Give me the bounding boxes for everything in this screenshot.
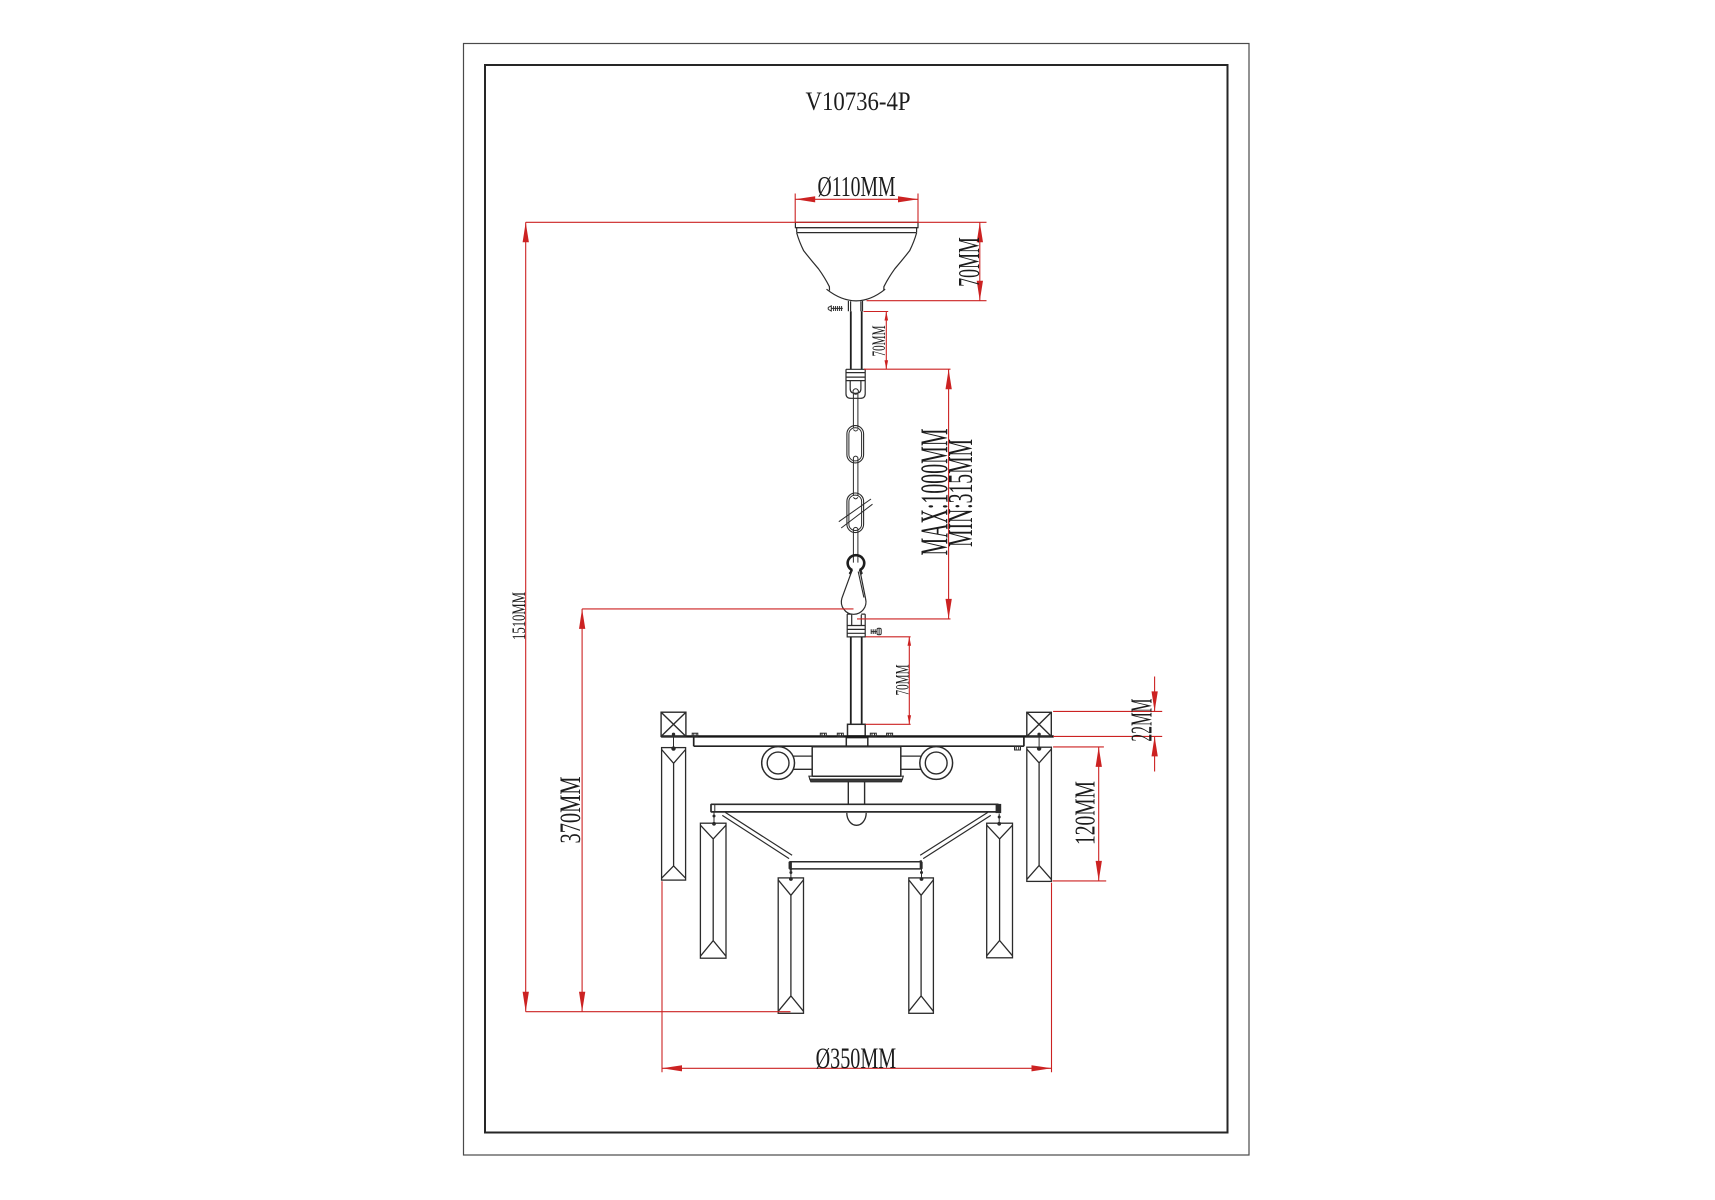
svg-text:Ø110MM: Ø110MM [818, 171, 896, 203]
svg-text:120MM: 120MM [1070, 781, 1102, 845]
svg-text:70MM: 70MM [951, 237, 986, 287]
svg-text:Ø350MM: Ø350MM [816, 1042, 897, 1075]
svg-text:22MM: 22MM [1124, 699, 1159, 742]
svg-text:1510MM: 1510MM [510, 592, 530, 640]
svg-text:V10736-4P: V10736-4P [806, 87, 911, 116]
svg-text:70MM: 70MM [894, 665, 914, 696]
svg-text:370MM: 370MM [555, 777, 587, 844]
svg-text:70MM: 70MM [870, 326, 890, 357]
svg-text:MIN:315MM: MIN:315MM [941, 439, 980, 547]
